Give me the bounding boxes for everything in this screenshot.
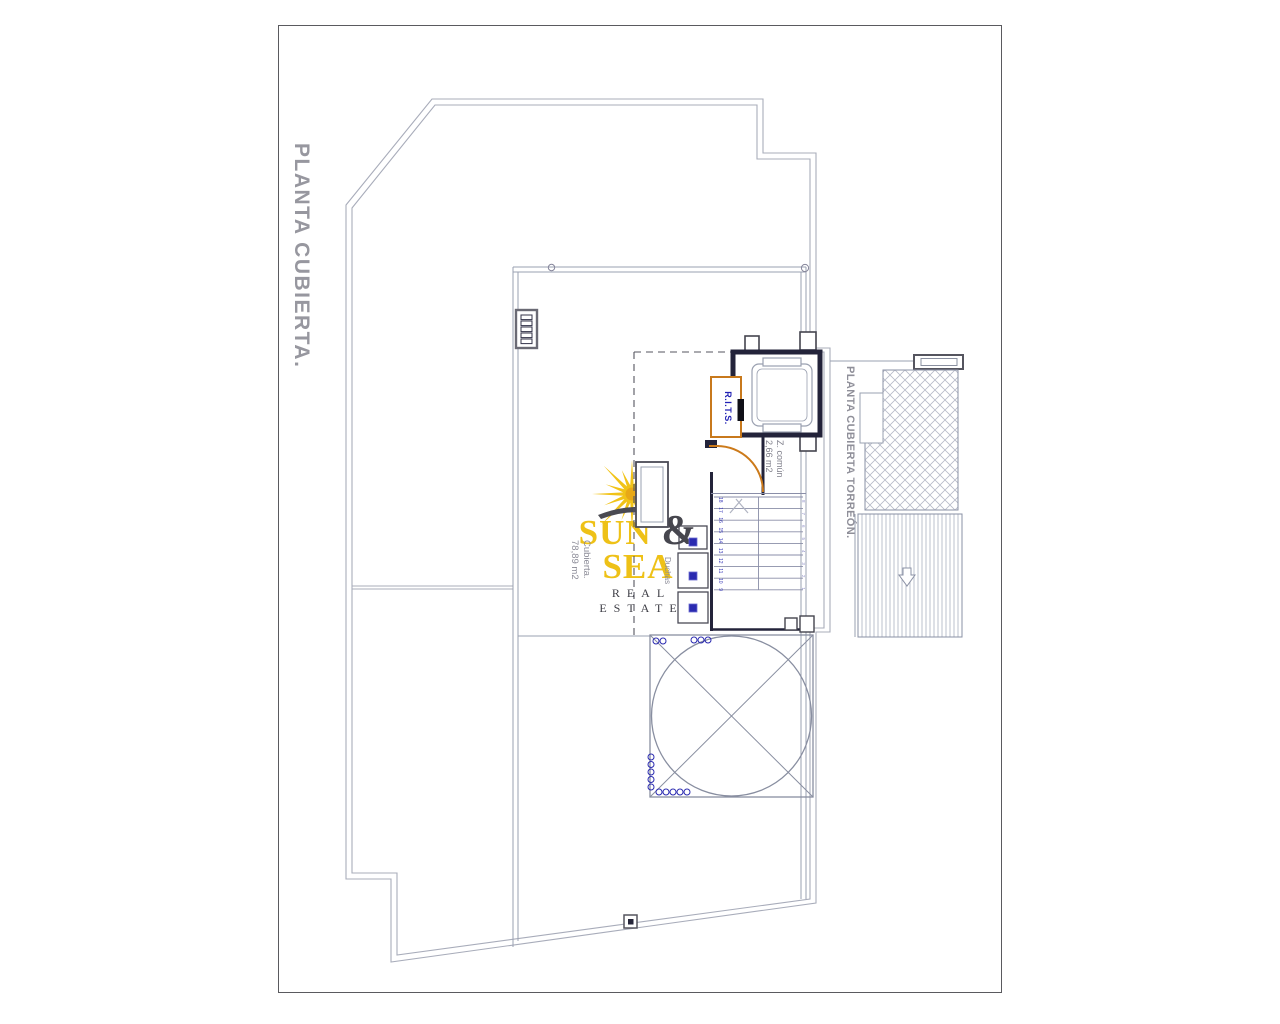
stair-numbers-left: 18 17 16 15 14 13 12 11 10 9 (717, 497, 723, 591)
building-outline (346, 99, 830, 962)
stair-number: 9 (717, 588, 723, 591)
roof-area: 78,89 m2 (568, 540, 580, 610)
stair-number: 14 (717, 538, 723, 544)
staircase (711, 472, 814, 632)
stair-number: 18 (717, 497, 723, 503)
stair-number: 17 (717, 507, 723, 513)
stair-number: 10 (717, 578, 723, 584)
stair-number: 8 (801, 500, 806, 503)
stair-direction-mark (730, 499, 748, 513)
common-zone-name: Z. común (774, 440, 785, 496)
door-and-walls (705, 437, 763, 495)
stair-number: 7 (801, 512, 806, 515)
jacuzzi (648, 635, 813, 797)
showers-label: Duchas (663, 557, 672, 595)
stair-number: 13 (717, 548, 723, 554)
roof-vent (516, 310, 537, 348)
elevator (733, 332, 820, 451)
floorplan-sheet: PLANTA CUBIERTA. SUN & SEA REAL ESTATE (0, 0, 1280, 1024)
stair-number: 2 (801, 575, 806, 578)
stair-number: 5 (801, 537, 806, 540)
roof-name: Cubierta. (580, 540, 592, 610)
torreon-title: PLANTA CUBIERTA TORREÓN. (844, 366, 856, 580)
stair-number: 15 (717, 528, 723, 534)
common-zone-area: 2,66 m2 (763, 440, 774, 496)
roof-drain (624, 915, 637, 928)
stair-number: 12 (717, 558, 723, 564)
stair-number: 3 (801, 562, 806, 565)
door-swing-arc (717, 446, 763, 492)
showers (636, 462, 708, 623)
stair-numbers-right: 8 7 6 5 4 3 2 1 (801, 500, 806, 590)
stair-number: 4 (801, 550, 806, 553)
plan-linework (0, 0, 1280, 1024)
stair-number: 16 (717, 517, 723, 523)
stair-number: 6 (801, 525, 806, 528)
common-zone-label: Z. común 2,66 m2 (763, 440, 785, 496)
roof-area-label: Cubierta. 78,89 m2 (568, 540, 592, 610)
jet-nozzles (648, 637, 711, 795)
rits-label: R.I.T.S. (723, 382, 733, 434)
stair-number: 1 (801, 587, 806, 590)
stair-number: 11 (717, 568, 723, 573)
